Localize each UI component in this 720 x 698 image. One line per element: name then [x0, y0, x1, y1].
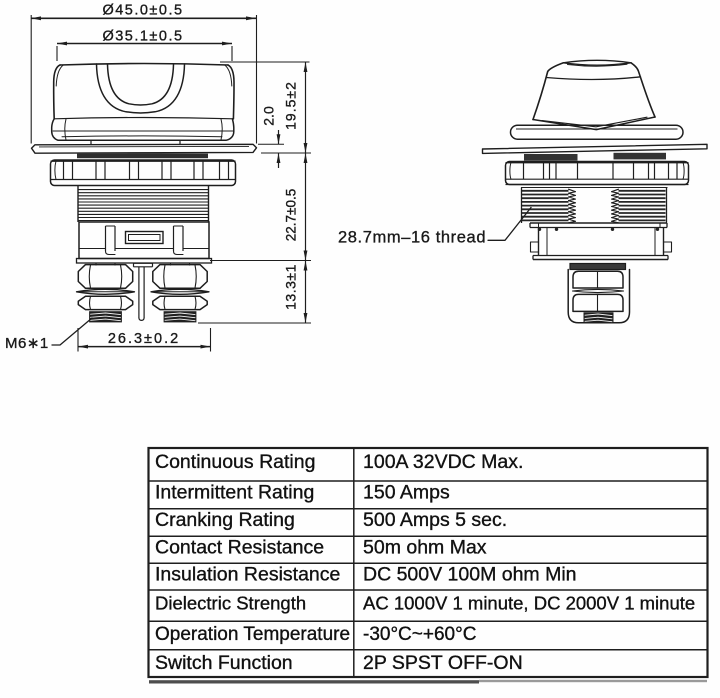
svg-text:Insulation Resistance: Insulation Resistance	[155, 563, 340, 585]
svg-text:Operation Temperature: Operation Temperature	[155, 624, 350, 645]
svg-text:28.7mm–16 thread: 28.7mm–16 thread	[338, 229, 486, 247]
svg-text:DC 500V 100M ohm Min: DC 500V 100M ohm Min	[363, 563, 577, 585]
svg-text:Intermittent Rating: Intermittent Rating	[155, 481, 314, 503]
svg-text:500 Amps 5 sec.: 500 Amps 5 sec.	[363, 509, 507, 531]
svg-text:Contact Resistance: Contact Resistance	[155, 536, 324, 558]
svg-text:2P SPST OFF-ON: 2P SPST OFF-ON	[363, 652, 523, 674]
svg-text:Switch Function: Switch Function	[155, 652, 293, 674]
svg-text:Continuous Rating: Continuous Rating	[155, 451, 315, 473]
svg-text:Dielectric Strength: Dielectric Strength	[155, 593, 306, 614]
svg-text:2.0: 2.0	[261, 106, 277, 126]
svg-text:Ø45.0±0.5: Ø45.0±0.5	[102, 3, 183, 19]
svg-text:19.5±2: 19.5±2	[283, 81, 299, 130]
svg-text:M6∗1: M6∗1	[5, 335, 49, 352]
svg-text:26.3±0.2: 26.3±0.2	[108, 331, 180, 347]
svg-text:-30°C~+60°C: -30°C~+60°C	[363, 624, 476, 645]
svg-text:22.7±0.5: 22.7±0.5	[284, 189, 299, 241]
svg-text:AC 1000V 1 minute, DC 2000V 1: AC 1000V 1 minute, DC 2000V 1 minute	[363, 593, 695, 614]
svg-text:100A 32VDC Max.: 100A 32VDC Max.	[363, 451, 523, 473]
svg-text:50m ohm Max: 50m ohm Max	[363, 536, 487, 558]
svg-text:13.3±1: 13.3±1	[283, 264, 299, 310]
svg-text:150 Amps: 150 Amps	[363, 481, 450, 503]
svg-text:Ø35.1±0.5: Ø35.1±0.5	[102, 29, 183, 45]
svg-text:Cranking Rating: Cranking Rating	[155, 509, 295, 531]
